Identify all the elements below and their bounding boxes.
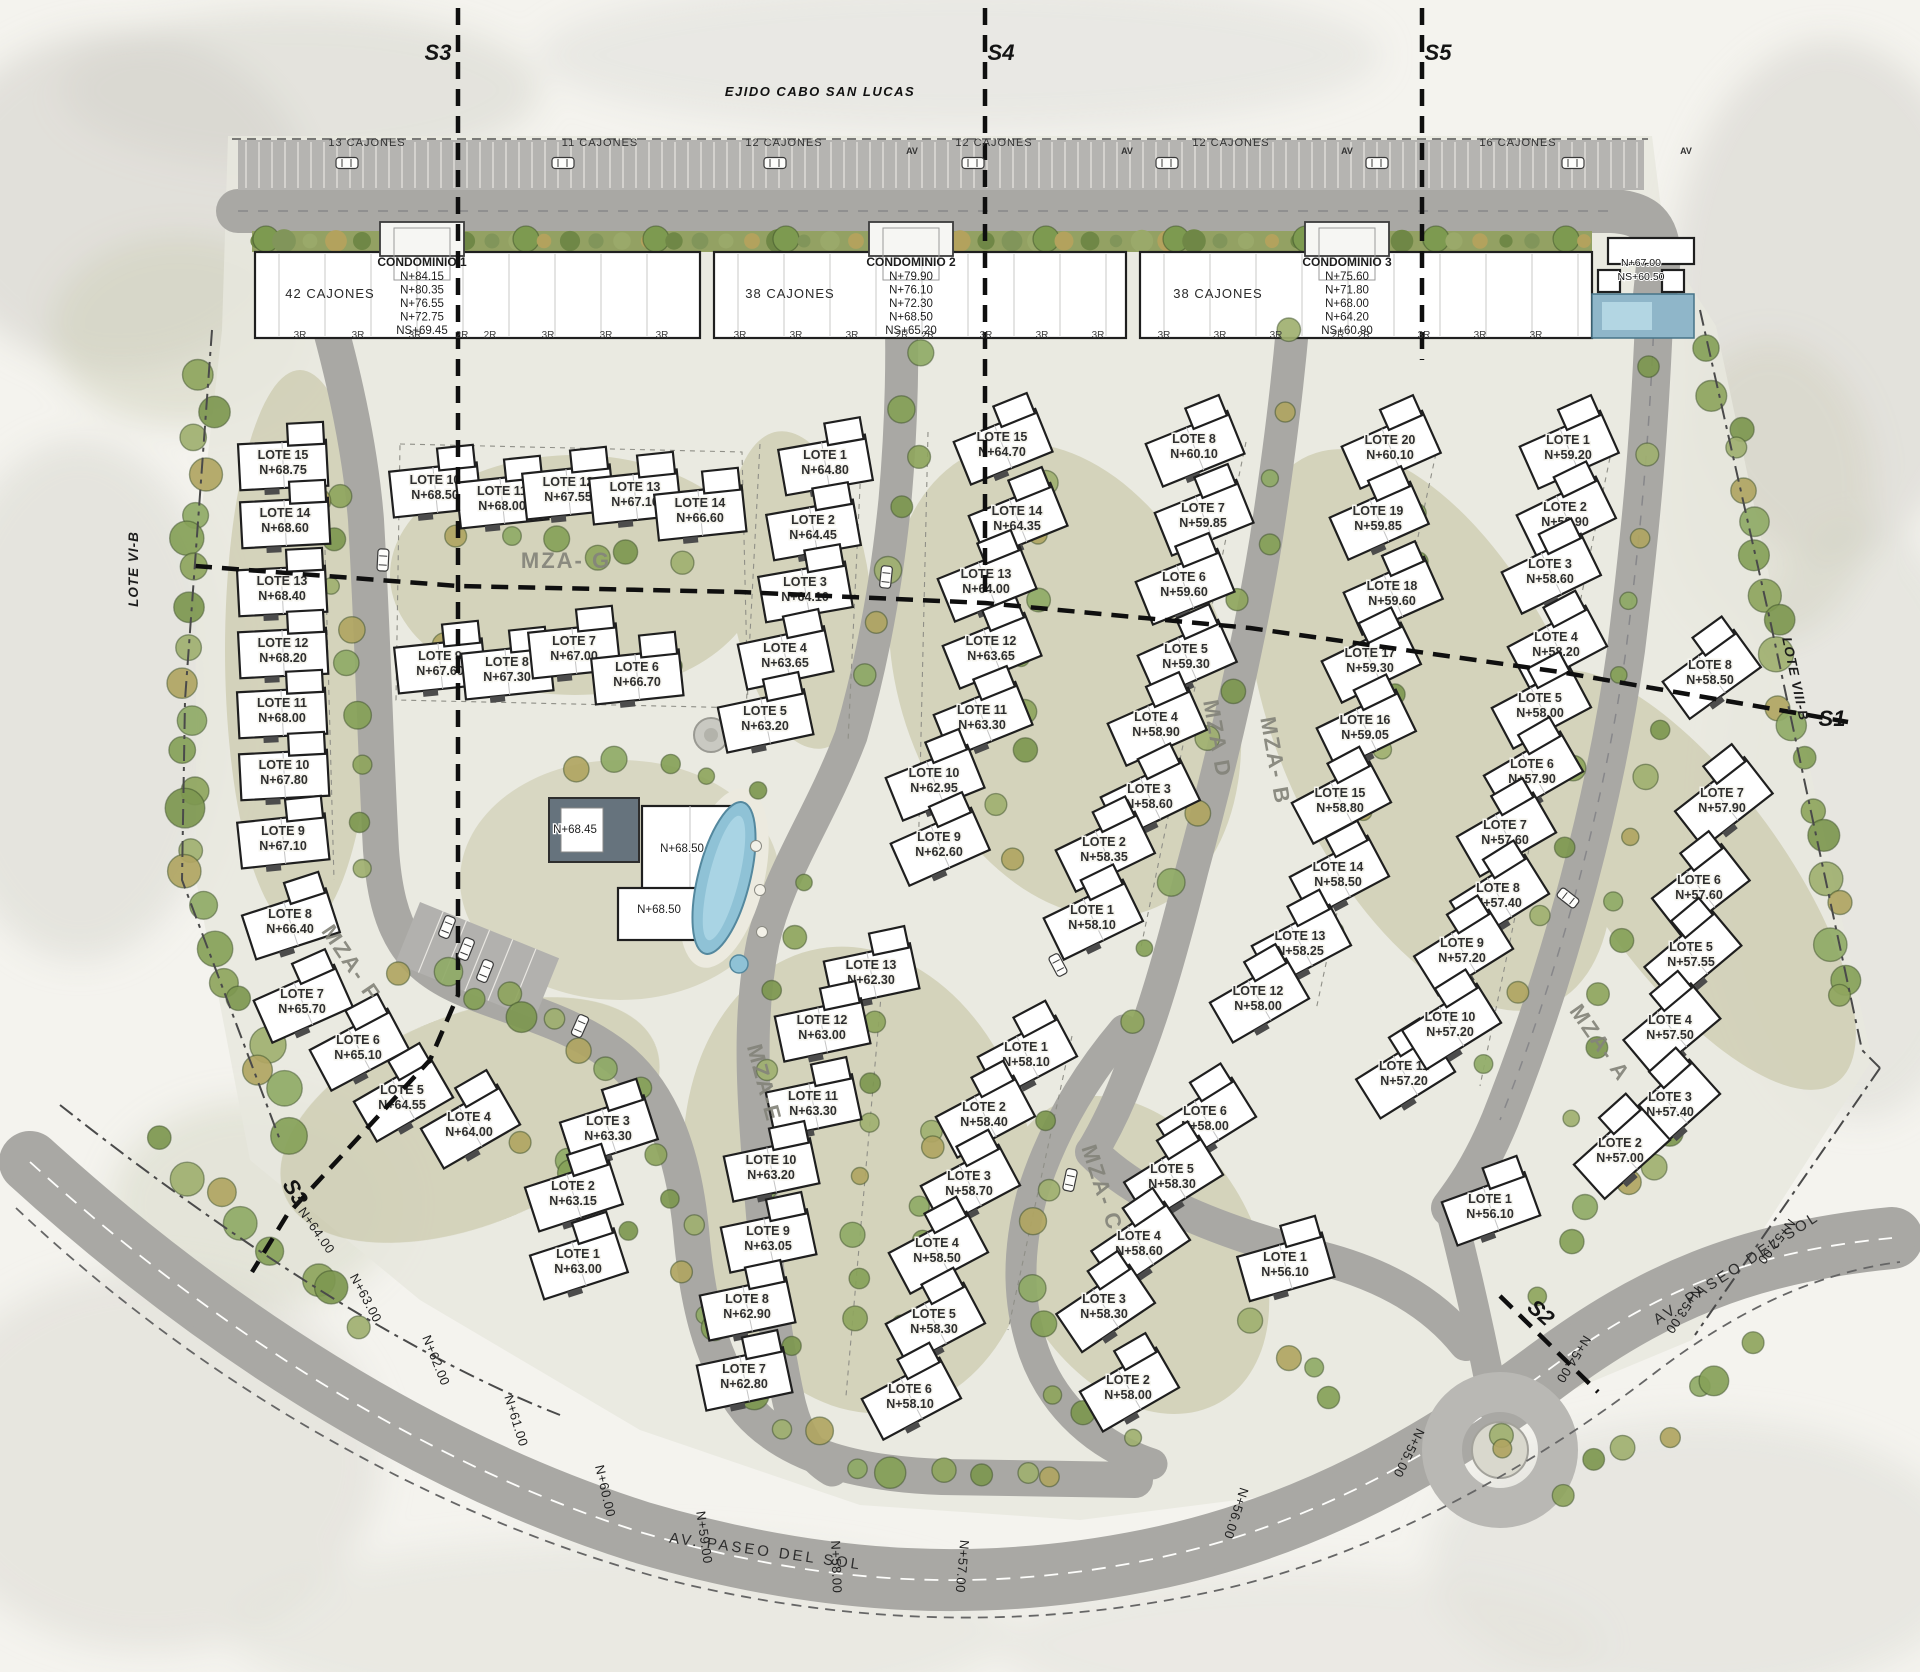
hedge-shrub (848, 233, 864, 249)
floor-count-label: 3R (1530, 330, 1543, 341)
tree (1221, 679, 1245, 703)
lot-elevation-label: N+58.00 (1234, 999, 1282, 1013)
lot-elevation-label: N+59.85 (1354, 519, 1402, 533)
lot-elevation-label: N+57.90 (1698, 801, 1746, 815)
hedge-shrub (692, 233, 709, 250)
lot-elevation-label: N+56.10 (1261, 1265, 1309, 1279)
tree (1660, 1428, 1680, 1448)
lot-number-label: LOTE 2 (1106, 1373, 1150, 1387)
tree (684, 1215, 704, 1235)
tree (619, 1222, 638, 1241)
lot-elevation-label: N+62.80 (720, 1377, 768, 1391)
tree (1507, 982, 1529, 1004)
lot-elevation-label: N+62.95 (910, 781, 958, 795)
lot-number-label: LOTE 14 (260, 506, 311, 520)
building-wing (286, 548, 323, 572)
tree (329, 485, 352, 508)
lot-elevation-label: N+59.05 (1341, 728, 1389, 742)
hedge-shrub (1445, 232, 1462, 249)
building-wing (639, 632, 677, 658)
lot-number-label: LOTE 2 (791, 513, 835, 527)
lot-elevation-label: N+68.50 (411, 488, 459, 502)
lot-elevation-label: N+58.80 (1316, 801, 1364, 815)
lot-number-label: LOTE 11 (477, 484, 527, 498)
lot-number-label: LOTE 14 (1313, 860, 1364, 874)
tree (544, 1009, 564, 1029)
car-icon (764, 158, 786, 169)
car-body (1562, 158, 1584, 169)
tree (1742, 1332, 1764, 1354)
building-wing (442, 621, 480, 647)
hedge-shrub (1055, 232, 1074, 251)
tree (1573, 1195, 1598, 1220)
tree (168, 855, 201, 888)
tree (506, 1002, 537, 1033)
floor-count-label: 3R (294, 330, 307, 341)
lot-number-label: LOTE 13 (257, 574, 308, 588)
tree (985, 794, 1007, 816)
lot-elevation-label: N+66.60 (676, 511, 724, 525)
tree (170, 521, 204, 555)
tree (1604, 892, 1623, 911)
tree (271, 1118, 308, 1155)
tree (1739, 540, 1770, 571)
tree (1125, 1429, 1142, 1446)
lot-number-label: LOTE 6 (1162, 570, 1206, 584)
building-wing (812, 482, 851, 510)
lot-number-label: LOTE 9 (1440, 936, 1484, 950)
building-wing (804, 544, 843, 572)
tree (564, 757, 589, 782)
floor-count-label: 2R (896, 330, 909, 341)
car-body (377, 549, 389, 572)
floor-count-label: 2R (484, 330, 497, 341)
lot-number-label: LOTE 1 (1070, 903, 1114, 917)
hedge-tree (773, 226, 799, 252)
tree (1651, 720, 1670, 739)
condominio-level-label: N+76.10 (889, 285, 933, 297)
lot-number-label: LOTE 7 (1483, 818, 1527, 832)
tree (1620, 592, 1637, 609)
tree (503, 527, 522, 546)
lot-elevation-label: N+58.60 (1526, 572, 1574, 586)
av-marker-label: AV (1341, 146, 1353, 156)
lot-elevation-label: N+66.70 (613, 675, 661, 689)
car-icon (336, 158, 358, 169)
lot-elevation-label: N+65.70 (278, 1002, 326, 1016)
lot-elevation-label: N+63.00 (798, 1028, 846, 1042)
hedge-shrub (1238, 233, 1254, 249)
lot-elevation-label: N+58.50 (1314, 875, 1362, 889)
floor-count-label: 3R (1092, 330, 1105, 341)
lot-elevation-label: N+64.80 (801, 463, 849, 477)
tree (796, 874, 812, 890)
tree (1121, 1010, 1144, 1033)
lot-number-label: LOTE 9 (261, 824, 305, 838)
hedge-shrub (798, 235, 811, 248)
lot-number-label: LOTE 6 (336, 1033, 380, 1047)
car-icon (1366, 158, 1388, 169)
tree (1493, 1439, 1512, 1458)
boundary-lot-label: LOTE VI-B (126, 531, 141, 607)
lot-elevation-label: N+64.55 (378, 1098, 426, 1112)
lot-elevation-label: N+56.10 (1466, 1207, 1514, 1221)
lot-elevation-label: N+58.90 (1132, 725, 1180, 739)
lot-elevation-label: N+58.50 (1686, 673, 1734, 687)
car-body (552, 158, 574, 169)
umbrella-icon (755, 885, 766, 896)
spa-circle (730, 955, 748, 973)
lot-number-label: LOTE 14 (675, 496, 726, 510)
tree (671, 1261, 693, 1283)
hedge-shrub (1002, 231, 1023, 252)
tree (891, 496, 913, 518)
lot-elevation-label: N+58.30 (910, 1322, 958, 1336)
section-label-s4: S4 (988, 40, 1015, 65)
tree (888, 396, 915, 423)
parking-count-label: 13 CAJONES (328, 137, 405, 149)
hedge-shrub (1182, 229, 1206, 253)
condominio-level-label: N+68.50 (889, 312, 933, 324)
condominio-level-label: N+71.80 (1325, 285, 1369, 297)
building-wing (288, 732, 325, 756)
lot-elevation-label: N+58.10 (1002, 1055, 1050, 1069)
lot-number-label: LOTE 1 (1263, 1250, 1307, 1264)
lot-number-label: LOTE 4 (1534, 630, 1578, 644)
tree (1552, 1485, 1574, 1507)
hedge-tree (643, 226, 669, 252)
lot-elevation-label: N+59.20 (1544, 448, 1592, 462)
lot-elevation-label: N+63.05 (744, 1239, 792, 1253)
tree (566, 1038, 591, 1063)
section-label-s3: S3 (425, 40, 452, 65)
lot-number-label: LOTE 8 (1688, 658, 1732, 672)
corner-building-level-label: N+67.00 (1621, 257, 1661, 269)
lot-elevation-label: N+58.70 (945, 1184, 993, 1198)
lot-elevation-label: N+68.00 (478, 499, 526, 513)
lot-number-label: LOTE 3 (783, 575, 827, 589)
lot-number-label: LOTE 7 (1700, 786, 1744, 800)
floor-count-label: 3R (1158, 330, 1171, 341)
tree (1693, 335, 1719, 361)
building-wing (287, 610, 324, 634)
lot-number-label: LOTE 15 (258, 448, 309, 462)
lot-elevation-label: N+58.35 (1080, 850, 1128, 864)
lot-elevation-label: N+58.50 (913, 1251, 961, 1265)
hedge-shrub (537, 234, 552, 249)
lot-elevation-label: N+62.60 (915, 845, 963, 859)
floor-count-label: 2R (922, 330, 935, 341)
lot-number-label: LOTE 1 (1468, 1192, 1512, 1206)
tree (1611, 667, 1627, 683)
floor-count-label: 3R (656, 330, 669, 341)
lot-elevation-label: N+60.10 (1366, 448, 1414, 462)
cajones-label: 38 CAJONES (1173, 286, 1262, 301)
tree (1317, 1386, 1339, 1408)
tree (1013, 738, 1037, 762)
floor-count-label: 3R (1418, 330, 1431, 341)
tree (1636, 443, 1659, 466)
building-porch (264, 676, 279, 683)
hedge-shrub (272, 229, 296, 253)
hedge-shrub (820, 231, 840, 251)
hedge-shrub (485, 234, 500, 249)
tree (165, 788, 205, 828)
parking-count-label: 12 CAJONES (955, 137, 1032, 149)
building-wing (702, 468, 740, 494)
tree (594, 1057, 617, 1080)
lot-elevation-label: N+65.10 (334, 1048, 382, 1062)
tree (1555, 837, 1575, 857)
tree (1020, 1208, 1047, 1235)
tree (1238, 1308, 1263, 1333)
tree (783, 926, 807, 950)
lot-number-label: LOTE 13 (1275, 929, 1326, 943)
lot-elevation-label: N+58.40 (960, 1115, 1008, 1129)
tree (661, 1190, 679, 1208)
lot-elevation-label: N+57.40 (1646, 1105, 1694, 1119)
tree (353, 755, 372, 774)
lot-number-label: LOTE 5 (743, 704, 787, 718)
tree (1630, 529, 1649, 548)
tree (1305, 1358, 1324, 1377)
lot-elevation-label: N+57.55 (1667, 955, 1715, 969)
hedge-shrub (1524, 233, 1539, 248)
lot-number-label: LOTE 5 (1669, 940, 1713, 954)
av-marker-label: AV (1680, 146, 1692, 156)
condominio-level-label: N+68.00 (1325, 298, 1369, 310)
tree (671, 551, 694, 574)
condominio-level-label: N+80.35 (400, 285, 444, 297)
tree (1610, 929, 1634, 953)
floor-count-label: 3R (734, 330, 747, 341)
lot-elevation-label: N+68.40 (258, 589, 306, 603)
tree (922, 1136, 944, 1158)
lot-elevation-label: N+67.10 (611, 495, 659, 509)
hedge-shrub (719, 234, 734, 249)
lot-number-label: LOTE 3 (1082, 1292, 1126, 1306)
car-body (962, 158, 984, 169)
hedge-shrub (744, 233, 760, 249)
tree (1031, 1311, 1057, 1337)
hedge-tree (1553, 226, 1579, 252)
condominio-level-label: N+79.90 (889, 271, 933, 283)
lot-number-label: LOTE 5 (912, 1307, 956, 1321)
building-porch (266, 546, 281, 553)
hedge-shrub (1391, 230, 1414, 253)
lot-number-label: LOTE 11 (257, 696, 307, 710)
tree (167, 668, 197, 698)
tree (971, 1464, 993, 1486)
tree (1829, 984, 1851, 1006)
lot-elevation-label: N+58.00 (1104, 1388, 1152, 1402)
lot-elevation-label: N+59.30 (1346, 661, 1394, 675)
condominio-level-label: N+76.55 (400, 298, 444, 310)
lot-number-label: LOTE 5 (1150, 1162, 1194, 1176)
tree (851, 1168, 868, 1185)
lot-number-label: LOTE 7 (280, 987, 324, 1001)
tree (353, 860, 371, 878)
tree (190, 891, 218, 919)
floor-count-label: 2R (1358, 330, 1371, 341)
floor-count-label: 3R (1474, 330, 1487, 341)
lot-elevation-label: N+63.30 (958, 718, 1006, 732)
tree (1277, 1346, 1302, 1371)
tree (908, 446, 931, 469)
car-icon (879, 565, 892, 588)
floor-count-label: 2R (456, 330, 469, 341)
lot-number-label: LOTE 13 (846, 958, 897, 972)
lot-number-label: LOTE 7 (552, 634, 596, 648)
amenity-elevation-label: N+68.50 (637, 904, 681, 916)
tree (806, 1417, 834, 1445)
condominio-name-label: CONDOMINIO 2 (866, 255, 956, 269)
condominio-level-label: NS+69.45 (396, 325, 447, 337)
lot-number-label: LOTE 3 (947, 1169, 991, 1183)
hedge-shrub (613, 232, 631, 250)
tree (1765, 605, 1795, 635)
car-body (879, 565, 892, 588)
lot-number-label: LOTE 7 (1181, 501, 1225, 515)
lot-number-label: LOTE 8 (725, 1292, 769, 1306)
car-icon (552, 158, 574, 169)
amenity-elevation-label: N+68.50 (660, 843, 704, 855)
lot-number-label: LOTE 10 (746, 1153, 797, 1167)
lot-elevation-label: N+67.80 (260, 773, 308, 787)
car-body (336, 158, 358, 169)
lot-elevation-label: N+68.00 (258, 711, 306, 725)
tree (1259, 534, 1280, 555)
lot-number-label: LOTE 6 (1510, 757, 1554, 771)
floor-count-label: 3R (600, 330, 613, 341)
building-wing (286, 670, 323, 694)
tree (1136, 940, 1152, 956)
tree (334, 650, 359, 675)
tree (762, 981, 781, 1000)
lot-elevation-label: N+58.10 (1068, 918, 1116, 932)
tree (601, 746, 627, 772)
tree (464, 988, 485, 1009)
av-marker-label: AV (906, 146, 918, 156)
lot-number-label: LOTE 4 (1117, 1229, 1161, 1243)
lot-elevation-label: N+63.65 (761, 656, 809, 670)
lot-number-label: LOTE 10 (259, 758, 310, 772)
lot-number-label: LOTE 12 (797, 1013, 848, 1027)
tree (932, 1458, 956, 1482)
tree (908, 340, 934, 366)
lot-number-label: LOTE 13 (610, 480, 661, 494)
lot-number-label: LOTE 19 (1353, 504, 1404, 518)
tree (1638, 356, 1659, 377)
lot-number-label: LOTE 9 (746, 1224, 790, 1238)
lot-elevation-label: N+67.30 (483, 670, 531, 684)
building-porch (263, 736, 278, 743)
lot-number-label: LOTE 3 (1528, 557, 1572, 571)
lot-elevation-label: N+58.30 (1080, 1307, 1128, 1321)
condominio-level-label: N+72.75 (400, 312, 444, 324)
tree (840, 1222, 865, 1247)
tree (1038, 1180, 1059, 1201)
condominio-name-label: CONDOMINIO 1 (377, 255, 467, 269)
building-wing (824, 417, 863, 445)
lot-number-label: LOTE 1 (1546, 433, 1590, 447)
lot-number-label: LOTE 4 (763, 641, 807, 655)
lot-number-label: LOTE 6 (888, 1382, 932, 1396)
floor-count-label: 3R (352, 330, 365, 341)
section-label-s1: S1 (1819, 706, 1846, 731)
lot-number-label: LOTE 11 (957, 703, 1007, 717)
tree (1474, 1055, 1493, 1074)
hedge-shrub (1265, 234, 1279, 248)
tree (199, 396, 230, 427)
hedge-shrub (588, 233, 603, 248)
lot-elevation-label: N+58.30 (1148, 1177, 1196, 1191)
lot-number-label: LOTE 12 (966, 634, 1017, 648)
floor-count-label: 3R (1036, 330, 1049, 341)
lot-elevation-label: N+64.45 (789, 528, 837, 542)
hedge-tree (1423, 226, 1449, 252)
lot-number-label: LOTE 5 (1518, 691, 1562, 705)
lot-number-label: LOTE 14 (992, 504, 1043, 518)
tree (1261, 470, 1278, 487)
car-icon (1562, 158, 1584, 169)
hedge-shrub (1213, 234, 1228, 249)
lot-elevation-label: N+68.60 (261, 521, 309, 535)
building-wing (637, 452, 675, 478)
tree (1275, 402, 1295, 422)
lot-number-label: LOTE 6 (1183, 1104, 1227, 1118)
lot-number-label: LOTE 4 (447, 1110, 491, 1124)
avenue-elevation-marker: N+58.00 (828, 1540, 845, 1594)
manzana-label: MZA- G (521, 548, 611, 573)
tree (875, 1457, 906, 1488)
tree (180, 424, 206, 450)
hedge-shrub (1577, 234, 1591, 248)
lot-number-label: LOTE 8 (268, 907, 312, 921)
floor-count-label: 3R (542, 330, 555, 341)
tree (1036, 1111, 1056, 1131)
lot-elevation-label: N+63.00 (554, 1262, 602, 1276)
parking-count-label: 11 CAJONES (562, 137, 638, 149)
hedge-shrub (353, 232, 371, 250)
parking-count-label: 16 CAJONES (1479, 137, 1556, 149)
tree (1610, 1435, 1635, 1460)
floor-count-label: 3R (1270, 330, 1283, 341)
tree (349, 812, 369, 832)
hedge-shrub (560, 231, 580, 251)
lot-number-label: LOTE 8 (485, 655, 529, 669)
tree (613, 540, 637, 564)
lot-elevation-label: N+63.15 (549, 1194, 597, 1208)
tree (208, 1178, 237, 1207)
mini-roundabout-center (704, 728, 718, 742)
lot-number-label: LOTE 1 (556, 1247, 600, 1261)
condominio-level-label: N+72.30 (889, 298, 933, 310)
lot-elevation-label: N+64.00 (445, 1125, 493, 1139)
floor-count-label: 3R (980, 330, 993, 341)
lot-number-label: LOTE 8 (1172, 432, 1216, 446)
hedge-shrub (1131, 230, 1153, 252)
lot-elevation-label: N+63.65 (967, 649, 1015, 663)
lot-number-label: LOTE 2 (1598, 1136, 1642, 1150)
floor-count-label: 3R (409, 330, 422, 341)
hedge-shrub (1472, 233, 1487, 248)
corner-pool (1602, 302, 1652, 330)
lot-elevation-label: N+59.60 (1368, 594, 1416, 608)
tree (645, 1144, 667, 1166)
tree (169, 737, 196, 764)
parking-count-label: 12 CAJONES (745, 137, 822, 149)
